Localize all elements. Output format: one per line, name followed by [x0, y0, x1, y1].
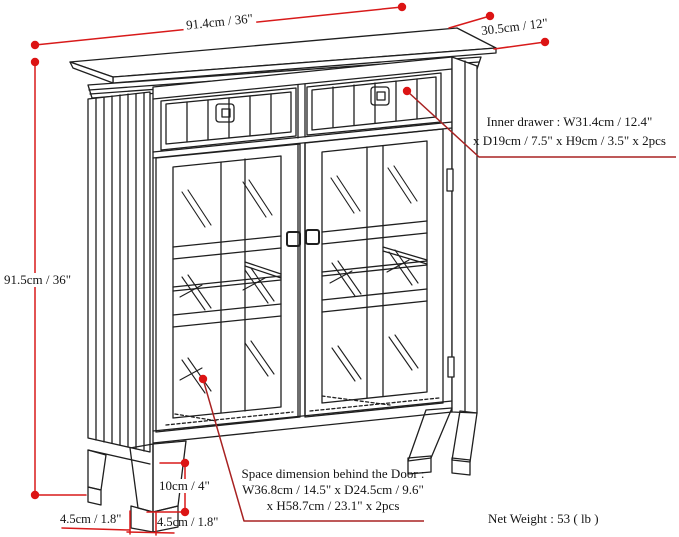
space-annotation-line2: W36.8cm / 14.5" x D24.5cm / 9.6" — [232, 482, 434, 498]
space-annotation-line1: Space dimension behind the Door : — [232, 466, 434, 482]
cabinet-front-face — [153, 57, 452, 443]
foot-width-back-label: 4.5cm / 1.8" — [60, 513, 121, 527]
inner-drawer-annotation-line2: x D19cm / 7.5" x H9cm / 3.5" x 2pcs — [460, 131, 679, 150]
space-behind-door-annotation: Space dimension behind the Door : W36.8c… — [232, 466, 434, 514]
cabinet-line-drawing — [0, 0, 679, 537]
space-annotation-line3: x H58.7cm / 23.1" x 2pcs — [232, 498, 434, 514]
cabinet-right-side — [452, 57, 477, 413]
leg-height-dimension-label: 10cm / 4" — [156, 479, 213, 493]
inner-drawer-annotation-line1: Inner drawer : W31.4cm / 12.4" — [460, 112, 679, 131]
dimension-diagram: 91.4cm / 36" 30.5cm / 12" 91.5cm / 36" I… — [0, 0, 679, 537]
inner-drawer-annotation: Inner drawer : W31.4cm / 12.4" x D19cm /… — [460, 112, 679, 150]
net-weight-label: Net Weight : 53 ( lb ) — [488, 512, 599, 526]
foot-width-front-label: 4.5cm / 1.8" — [157, 516, 218, 530]
height-dimension-label: 91.5cm / 36" — [1, 273, 74, 287]
cabinet-left-side-panel — [88, 92, 150, 464]
